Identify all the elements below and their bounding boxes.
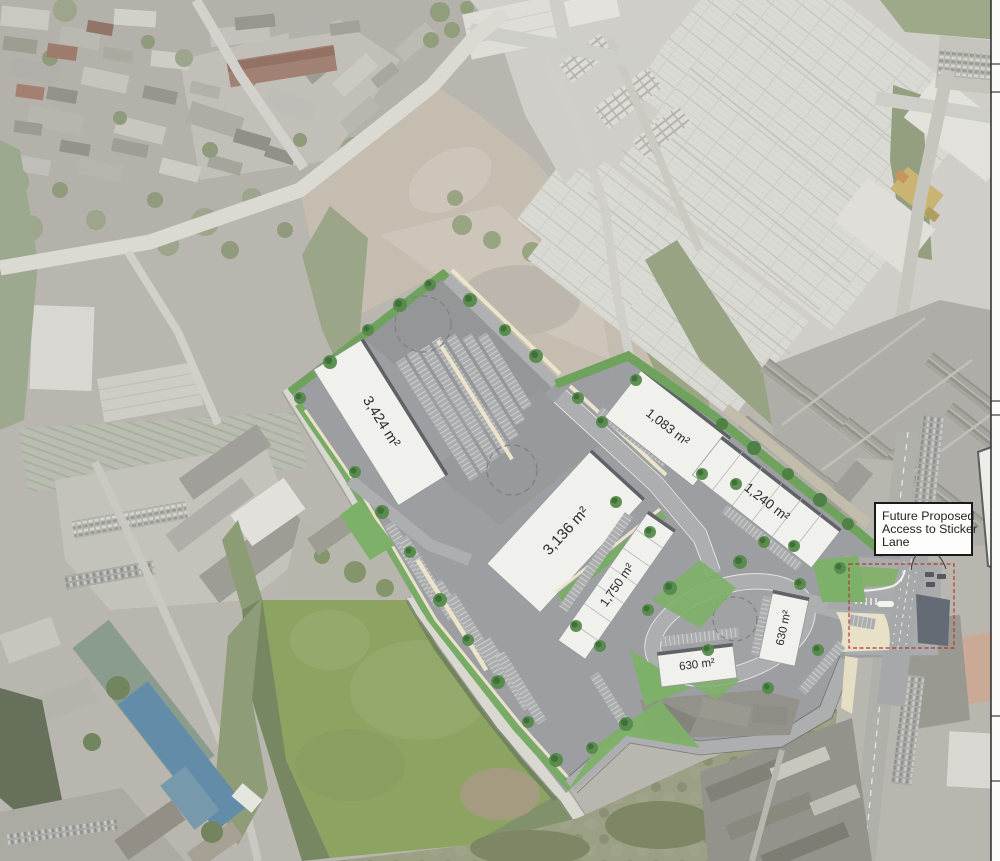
- svg-text:Lane: Lane: [882, 535, 910, 549]
- svg-text:Future Proposed: Future Proposed: [882, 509, 974, 523]
- svg-text:Access to Sticker: Access to Sticker: [882, 522, 977, 536]
